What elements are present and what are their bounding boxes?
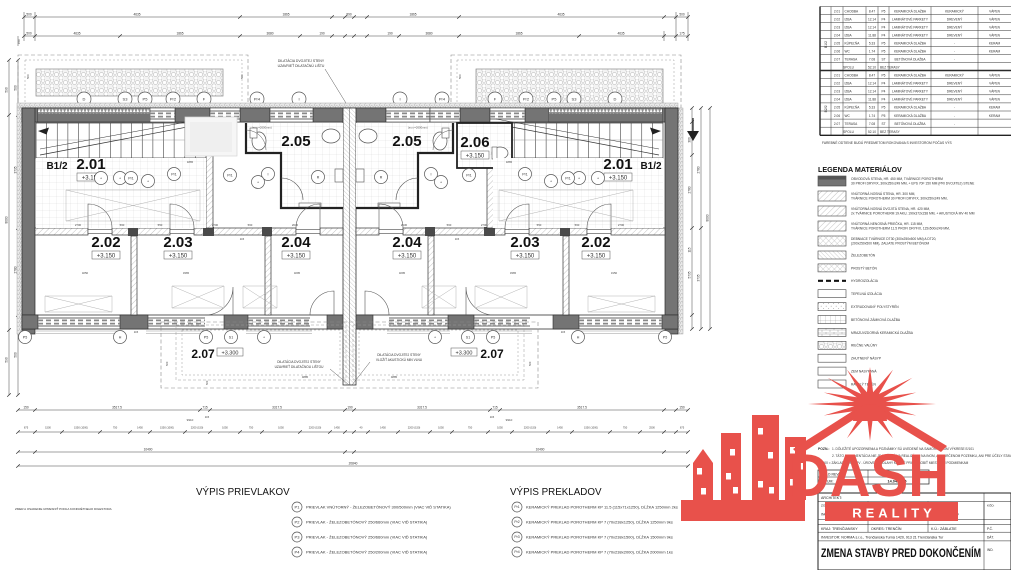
svg-text:5.33: 5.33: [869, 106, 875, 110]
svg-text:Pr1: Pr1: [227, 173, 233, 177]
svg-text:TERASA: TERASA: [845, 57, 859, 61]
svg-text:2.02: 2.02: [91, 234, 120, 251]
svg-text:590: 590: [5, 87, 9, 93]
svg-text:KERAM: KERAM: [989, 41, 1001, 45]
svg-text:150: 150: [23, 405, 29, 409]
svg-text:2630: 2630: [401, 223, 408, 227]
svg-text:1450: 1450: [137, 426, 143, 430]
svg-text:I: I: [399, 96, 400, 101]
svg-text:1550 (1000): 1550 (1000): [584, 426, 598, 430]
svg-text:1.74: 1.74: [869, 49, 875, 53]
svg-text:2630: 2630: [292, 223, 299, 227]
svg-text:+3.150: +3.150: [587, 253, 606, 259]
svg-text:KÚPEĽŇA: KÚPEĽŇA: [845, 105, 861, 110]
svg-text:PROSTÝ BETÓN: PROSTÝ BETÓN: [851, 265, 877, 270]
svg-text:KERAMICKÝ PREKLAD POROTHERM KP: KERAMICKÝ PREKLAD POROTHERM KP 7 (70x238…: [526, 535, 673, 540]
svg-text:H: H: [119, 335, 122, 339]
svg-text:-: -: [954, 114, 955, 118]
svg-text:115: 115: [205, 415, 210, 419]
svg-text:52.10: 52.10: [868, 130, 876, 134]
svg-text:2700: 2700: [75, 223, 82, 227]
svg-text:(sv.v.=2600mm): (sv.v.=2600mm): [408, 126, 428, 130]
svg-text:+3.150: +3.150: [97, 253, 116, 259]
svg-text:2.02: 2.02: [834, 81, 840, 85]
svg-text:190: 190: [319, 31, 325, 35]
svg-text:DREVENÝ: DREVENÝ: [947, 17, 963, 21]
svg-text:-: -: [954, 57, 955, 61]
svg-text:P5: P5: [882, 49, 886, 53]
svg-text:KERAMICKÁ DLAŽBA: KERAMICKÁ DLAŽBA: [894, 48, 927, 53]
svg-text:ZMENA STAVBY PRED DOKONČENÍM: ZMENA STAVBY PRED DOKONČENÍM: [821, 547, 981, 560]
svg-text:TERASA: TERASA: [845, 122, 859, 126]
svg-text:4635: 4635: [73, 31, 80, 35]
svg-text:2.04: 2.04: [281, 234, 311, 251]
svg-text:2.05: 2.05: [834, 106, 840, 110]
svg-text:ZEM NASYPANÁ: ZEM NASYPANÁ: [851, 370, 877, 374]
svg-text:KERAMICKÁ DLAŽBA: KERAMICKÁ DLAŽBA: [894, 72, 927, 77]
svg-text:KERAM: KERAM: [989, 106, 1001, 110]
svg-text:3365: 3365: [183, 271, 190, 275]
svg-text:VÁPEN: VÁPEN: [989, 9, 1001, 13]
svg-text:12.14: 12.14: [868, 17, 876, 21]
svg-text:B1/2: B1/2: [824, 41, 828, 48]
svg-text:+3.300: +3.300: [456, 351, 473, 357]
svg-text:2.05: 2.05: [392, 133, 421, 150]
svg-text:11.88: 11.88: [868, 33, 876, 37]
svg-text:KERAMICKÁ DLAŽBA: KERAMICKÁ DLAŽBA: [894, 40, 927, 45]
svg-text:+: +: [263, 335, 265, 339]
svg-text:Pr1: Pr1: [514, 505, 519, 509]
svg-text:KERAMICKÝ: KERAMICKÝ: [945, 73, 965, 77]
svg-text:IZBA: IZBA: [845, 98, 853, 102]
svg-text:P.Č.: P.Č.: [987, 526, 993, 531]
svg-text:115: 115: [688, 247, 692, 252]
svg-text:190: 190: [347, 405, 353, 409]
svg-text:LAMINÁTOVÉ PARKETY: LAMINÁTOVÉ PARKETY: [892, 80, 929, 85]
svg-text:ZMER A OSADENIE UPRESNIŤ PODĽA: ZMER A OSADENIE UPRESNIŤ PODĽA KONKRÉTNE…: [15, 506, 112, 511]
svg-text:500: 500: [528, 361, 532, 366]
svg-text:3365: 3365: [510, 271, 517, 275]
svg-text:DASH: DASH: [789, 442, 949, 509]
svg-text:2.04: 2.04: [834, 98, 840, 102]
svg-text:3295: 3295: [399, 271, 406, 275]
svg-text:MRAZUVZDORNÁ KERAMICKÁ DLAŽBA: MRAZUVZDORNÁ KERAMICKÁ DLAŽBA: [851, 330, 914, 335]
svg-text:12.14: 12.14: [868, 81, 876, 85]
svg-text:1050: 1050: [222, 426, 228, 430]
svg-text:REALITY: REALITY: [852, 506, 936, 521]
svg-text:SPOLU: SPOLU: [843, 65, 855, 69]
svg-text:OKRES: TRENČÍN: OKRES: TRENČÍN: [871, 526, 902, 531]
svg-text:P5: P5: [882, 114, 886, 118]
svg-text:500: 500: [14, 85, 18, 91]
svg-text:BETÓNOVÁ ZÁMKOVÁ DLAŽBA: BETÓNOVÁ ZÁMKOVÁ DLAŽBA: [851, 317, 901, 322]
svg-text:190: 190: [387, 31, 393, 35]
svg-text:TEPELNÁ IZOLÁCIA: TEPELNÁ IZOLÁCIA: [851, 292, 883, 296]
svg-text:2200 (150): 2200 (150): [191, 426, 204, 430]
svg-text:VÁPEN: VÁPEN: [989, 25, 1001, 29]
svg-text:P1: P1: [295, 504, 301, 509]
svg-text:VÁPEN: VÁPEN: [989, 17, 1001, 21]
svg-text:Pr1: Pr1: [128, 176, 134, 180]
svg-text:7.08: 7.08: [869, 57, 875, 61]
svg-text:12.14: 12.14: [868, 90, 876, 94]
svg-text:P5: P5: [882, 9, 886, 13]
svg-text:+3.150: +3.150: [516, 253, 535, 259]
svg-text:3680: 3680: [266, 31, 273, 35]
svg-text:500: 500: [205, 380, 209, 385]
svg-text:2.01: 2.01: [603, 156, 632, 173]
svg-text:1450: 1450: [380, 426, 386, 430]
svg-text:2780: 2780: [697, 166, 701, 173]
svg-text:52.10: 52.10: [868, 65, 876, 69]
svg-text:+3.150: +3.150: [466, 153, 485, 159]
svg-text:Pr2: Pr2: [170, 96, 177, 101]
svg-text:590: 590: [5, 357, 9, 363]
svg-text:VÝPIS PRIEVLAKOV: VÝPIS PRIEVLAKOV: [196, 487, 290, 498]
svg-text:P4: P4: [882, 17, 886, 21]
svg-text:+: +: [550, 179, 552, 183]
svg-text:IZBA: IZBA: [845, 90, 853, 94]
svg-text:R: R: [380, 175, 383, 179]
svg-text:9910: 9910: [187, 418, 194, 422]
svg-text:I: I: [268, 172, 269, 176]
svg-text:300: 300: [688, 137, 692, 143]
svg-text:8000: 8000: [5, 216, 9, 223]
svg-text:1865: 1865: [282, 12, 289, 16]
svg-text:LAMINÁTOVÉ PARKETY: LAMINÁTOVÉ PARKETY: [892, 24, 929, 29]
svg-text:ST: ST: [881, 122, 885, 126]
svg-text:7.08: 7.08: [869, 122, 875, 126]
svg-text:KERAM: KERAM: [989, 49, 1001, 53]
svg-text:12.14: 12.14: [868, 25, 876, 29]
svg-text:CHODBA: CHODBA: [845, 9, 860, 13]
svg-text:B1/2: B1/2: [46, 161, 68, 172]
svg-text:TVÁRNICE POROTHERM 30 PROFI DR: TVÁRNICE POROTHERM 30 PROFI DRYFIX, 300x…: [851, 196, 948, 200]
svg-text:560: 560: [575, 223, 580, 227]
svg-text:KERAMICKÝ PREKLAD POROTHERM KP: KERAMICKÝ PREKLAD POROTHERM KP 7 (70x238…: [526, 550, 673, 555]
svg-text:750: 750: [623, 426, 628, 430]
svg-text:4635: 4635: [557, 12, 564, 16]
svg-text:3517.5: 3517.5: [112, 405, 122, 409]
svg-text:LAMINÁTOVÉ PARKETY: LAMINÁTOVÉ PARKETY: [892, 32, 929, 37]
svg-text:VÁPEN: VÁPEN: [989, 98, 1001, 102]
svg-text:5.33: 5.33: [869, 41, 875, 45]
svg-text:LAMINÁTOVÉ PARKETY: LAMINÁTOVÉ PARKETY: [892, 89, 929, 94]
svg-text:PRIEVLAK - ŽELEZOBETÓNOVÝ 250/: PRIEVLAK - ŽELEZOBETÓNOVÝ 250/200mm (VIA…: [306, 550, 428, 555]
svg-text:UZAVRIEŤ DILATAČNÚ LIŠTU: UZAVRIEŤ DILATAČNÚ LIŠTU: [278, 63, 325, 68]
svg-text:2.03: 2.03: [834, 90, 840, 94]
svg-text:2.06: 2.06: [834, 49, 840, 53]
svg-text:+: +: [578, 176, 580, 180]
svg-text:DREVENÝ: DREVENÝ: [947, 81, 963, 85]
svg-text:+: +: [597, 176, 599, 180]
svg-text:P4: P4: [882, 98, 886, 102]
svg-text:4885: 4885: [391, 375, 398, 379]
svg-text:+: +: [440, 180, 442, 184]
svg-text:DILATÁCIA DVOJITEJ STENY: DILATÁCIA DVOJITEJ STENY: [277, 360, 321, 364]
svg-text:1550 (1000): 1550 (1000): [74, 426, 88, 430]
svg-text:2.05: 2.05: [834, 41, 840, 45]
svg-text:K.Ú.: ZÁBLATIE: K.Ú.: ZÁBLATIE: [931, 526, 957, 531]
svg-text:+: +: [119, 176, 121, 180]
svg-text:Pr4: Pr4: [514, 550, 519, 554]
svg-text:3735: 3735: [697, 274, 701, 281]
svg-text:S1: S1: [229, 335, 233, 339]
svg-text:550: 550: [158, 223, 163, 227]
svg-text:2700: 2700: [618, 223, 625, 227]
svg-text:DILATÁCIA DVOJITEJ STENY: DILATÁCIA DVOJITEJ STENY: [377, 353, 421, 357]
svg-text:LAMINÁTOVÉ PARKETY: LAMINÁTOVÉ PARKETY: [892, 16, 929, 21]
svg-text:Pr4: Pr4: [254, 96, 261, 101]
svg-text:560: 560: [447, 223, 452, 227]
svg-text:PRIEVLAK VNÚTORNÝ - ŽELEZOBETÓ: PRIEVLAK VNÚTORNÝ - ŽELEZOBETÓNOVÝ 300/5…: [306, 505, 451, 510]
svg-text:P5: P5: [663, 335, 667, 339]
svg-text:DÁT.: DÁT.: [987, 536, 994, 540]
svg-text:715: 715: [492, 405, 498, 409]
svg-text:+3.150: +3.150: [398, 253, 417, 259]
svg-text:10400: 10400: [536, 447, 545, 451]
svg-text:Pr1: Pr1: [466, 173, 472, 177]
svg-text:2.05: 2.05: [281, 133, 310, 150]
svg-text:S1: S1: [466, 335, 470, 339]
svg-text:2200 (150): 2200 (150): [524, 426, 537, 430]
svg-text:10400: 10400: [144, 447, 153, 451]
svg-text:IND.: IND.: [987, 548, 993, 552]
svg-text:KERAMICKÝ: KERAMICKÝ: [945, 9, 965, 13]
svg-text:715: 715: [202, 405, 208, 409]
svg-text:2.01: 2.01: [834, 73, 840, 77]
svg-text:EXTRUDOVANÝ POLYSTYRÉN: EXTRUDOVANÝ POLYSTYRÉN: [851, 304, 899, 309]
svg-text:VLOŽIŤ AKUSTICKÚ MIN VLNU: VLOŽIŤ AKUSTICKÚ MIN VLNU: [376, 357, 423, 362]
svg-text:DREVENÝ: DREVENÝ: [947, 90, 963, 94]
svg-text:RIEČNE VALÚNY: RIEČNE VALÚNY: [851, 343, 878, 348]
svg-text:KÚPEĽŇA: KÚPEĽŇA: [845, 40, 861, 45]
svg-text:VÁPEN: VÁPEN: [989, 73, 1001, 77]
svg-text:Pr4: Pr4: [439, 96, 446, 101]
svg-text:P5: P5: [882, 73, 886, 77]
svg-text:560: 560: [248, 223, 253, 227]
svg-text:115: 115: [240, 237, 245, 241]
svg-text:KERAMICKÁ DLAŽBA: KERAMICKÁ DLAŽBA: [894, 8, 927, 13]
svg-text:LEGENDA MATERIÁLOV: LEGENDA MATERIÁLOV: [818, 165, 902, 174]
svg-text:2200 (150): 2200 (150): [408, 426, 421, 430]
svg-text:FAREBNÉ ODTIENE BUDÚ PREDMETOM: FAREBNÉ ODTIENE BUDÚ PREDMETOM ROKOVANIA…: [822, 140, 953, 145]
svg-text:2.03: 2.03: [510, 234, 539, 251]
svg-text:500: 500: [458, 74, 462, 79]
svg-text:P4: P4: [882, 33, 886, 37]
svg-text:H: H: [577, 335, 580, 339]
svg-text:1500: 1500: [45, 426, 51, 430]
svg-text:2.02: 2.02: [834, 17, 840, 21]
svg-text:550: 550: [537, 223, 542, 227]
svg-text:P4: P4: [882, 25, 886, 29]
svg-text:675: 675: [24, 426, 29, 430]
svg-text:2780: 2780: [688, 186, 692, 193]
svg-text:-: -: [954, 106, 955, 110]
svg-text:-: -: [954, 41, 955, 45]
svg-text:KÓD:: KÓD:: [987, 503, 995, 508]
svg-text:VÁPEN: VÁPEN: [989, 81, 1001, 85]
svg-text:D: D: [614, 96, 617, 101]
svg-text:3150: 3150: [611, 271, 618, 275]
svg-text:DEBNIACE TVÁRNICE DT30 (300x25: DEBNIACE TVÁRNICE DT30 (300x250x500 MM) …: [851, 237, 936, 241]
svg-text:4635: 4635: [133, 12, 140, 16]
svg-text:2.07: 2.07: [834, 122, 840, 126]
svg-text:890: 890: [346, 12, 352, 16]
svg-text:1865: 1865: [187, 160, 194, 164]
svg-text:2.07: 2.07: [191, 347, 215, 361]
svg-text:2700: 2700: [212, 223, 219, 227]
svg-text:3517.5: 3517.5: [577, 405, 587, 409]
svg-text:30 PROFI DRYFIX, 300x250x249 M: 30 PROFI DRYFIX, 300x250x249 MM, + EPS 7…: [851, 181, 975, 185]
svg-text:VÁPEN: VÁPEN: [989, 90, 1001, 94]
svg-text:+3.150: +3.150: [169, 253, 188, 259]
svg-text:P2: P2: [295, 519, 301, 524]
svg-text:LAMINÁTOVÉ PARKETY: LAMINÁTOVÉ PARKETY: [892, 97, 929, 102]
svg-text:P5: P5: [143, 96, 149, 101]
svg-text:DREVENÝ: DREVENÝ: [947, 98, 963, 102]
svg-text:500: 500: [26, 74, 30, 79]
svg-text:P5: P5: [491, 335, 495, 339]
svg-text:1865: 1865: [176, 31, 183, 35]
svg-text:BEZ TERASY: BEZ TERASY: [880, 130, 901, 134]
svg-text:-: -: [954, 49, 955, 53]
svg-text:+3.150: +3.150: [609, 175, 628, 181]
svg-text:1550 (1000): 1550 (1000): [160, 426, 174, 430]
svg-text:2.06: 2.06: [834, 114, 840, 118]
svg-text:-: -: [954, 122, 955, 126]
svg-text:4635: 4635: [617, 31, 624, 35]
svg-text:1050: 1050: [278, 426, 284, 430]
svg-text:DILATÁCIA DVOJITEJ STENY: DILATÁCIA DVOJITEJ STENY: [278, 59, 325, 63]
svg-text:5735: 5735: [688, 271, 692, 278]
svg-text:ZHUTNENÝ NÁSYP: ZHUTNENÝ NÁSYP: [851, 357, 882, 361]
svg-text:I: I: [431, 172, 432, 176]
svg-text:500: 500: [14, 352, 18, 358]
svg-text:115: 115: [455, 237, 460, 241]
svg-text:+: +: [147, 179, 149, 183]
svg-text:2.04: 2.04: [834, 33, 840, 37]
svg-text:UZAVRIEŤ DILATAČNOU LIŠTOU: UZAVRIEŤ DILATAČNOU LIŠTOU: [275, 364, 325, 369]
svg-text:Pr2: Pr2: [523, 96, 530, 101]
svg-text:IZBA: IZBA: [845, 17, 853, 21]
svg-text:SPOLU: SPOLU: [843, 130, 855, 134]
svg-text:VNÚTORNÁ NOSNÁ DVOJITÁ STENA,: VNÚTORNÁ NOSNÁ DVOJITÁ STENA, HR. 420 MM…: [851, 207, 930, 211]
svg-text:3295: 3295: [294, 271, 301, 275]
svg-text:750: 750: [113, 426, 118, 430]
svg-text:B1/2: B1/2: [640, 161, 662, 172]
svg-text:D: D: [83, 96, 86, 101]
svg-text:Pr2: Pr2: [514, 520, 519, 524]
svg-text:9910: 9910: [506, 418, 513, 422]
svg-text:2.03: 2.03: [834, 25, 840, 29]
svg-text:HYDROIZOLÁCIA: HYDROIZOLÁCIA: [851, 279, 879, 283]
svg-text:P5: P5: [23, 335, 27, 339]
svg-text:1450: 1450: [557, 426, 563, 430]
svg-text:2.03: 2.03: [163, 234, 192, 251]
svg-text:20840: 20840: [349, 461, 358, 465]
svg-text:P4: P4: [882, 90, 886, 94]
svg-text:BETÓNOVÁ DLAŽBA: BETÓNOVÁ DLAŽBA: [895, 56, 927, 61]
svg-text:675: 675: [680, 426, 685, 430]
svg-text:P5: P5: [204, 335, 208, 339]
svg-text:VNÚTORNÁ NENOSNÁ PRIEČKA, HR.: VNÚTORNÁ NENOSNÁ PRIEČKA, HR. 115 MM,: [851, 221, 923, 226]
svg-text:150: 150: [17, 39, 21, 44]
svg-text:2.07: 2.07: [480, 347, 504, 361]
svg-text:500: 500: [165, 361, 169, 366]
svg-text:750: 750: [468, 426, 473, 430]
svg-text:BETÓNOVÁ DLAŽBA: BETÓNOVÁ DLAŽBA: [895, 121, 927, 126]
svg-text:2700: 2700: [481, 223, 488, 227]
svg-text:P4: P4: [295, 549, 301, 554]
svg-text:2.07: 2.07: [834, 57, 840, 61]
svg-text:1865: 1865: [409, 12, 416, 16]
svg-text:1450: 1450: [334, 426, 340, 430]
svg-text:115: 115: [490, 415, 495, 419]
svg-text:KERAM: KERAM: [989, 114, 1001, 118]
svg-text:OBVODOVÁ STENA, HR. 450 MM, TV: OBVODOVÁ STENA, HR. 450 MM, TVÁRNICE POR…: [851, 177, 943, 181]
svg-text:ŽELEZOBETÓN: ŽELEZOBETÓN: [851, 252, 876, 257]
svg-text:2.06: 2.06: [460, 134, 489, 151]
svg-text:KRAJ: TRENČIANSKY: KRAJ: TRENČIANSKY: [821, 526, 858, 531]
svg-text:1050: 1050: [497, 426, 503, 430]
svg-text:KERAMICKÝ PREKLAD POROTHERM KP: KERAMICKÝ PREKLAD POROTHERM KP 11.5 (115…: [526, 505, 678, 510]
svg-text:WC: WC: [845, 114, 851, 118]
svg-text:DREVENÝ: DREVENÝ: [947, 33, 963, 37]
svg-text:PRIEVLAK - ŽELEZOBETÓNOVÝ 250/: PRIEVLAK - ŽELEZOBETÓNOVÝ 250/660mm (VIA…: [306, 520, 428, 525]
svg-text:P5: P5: [882, 41, 886, 45]
svg-text:R: R: [317, 175, 320, 179]
svg-text:INVESTOR: NORMA s.r.o., Trenč: INVESTOR: NORMA s.r.o., Trenčianska Turn…: [821, 536, 944, 540]
svg-text:4885: 4885: [302, 375, 309, 379]
svg-text:DREVENÝ: DREVENÝ: [947, 25, 963, 29]
svg-text:3680: 3680: [425, 31, 432, 35]
svg-text:115: 115: [134, 330, 139, 334]
svg-text:Pr3: Pr3: [514, 535, 519, 539]
svg-text:BEZ TERASY: BEZ TERASY: [880, 65, 901, 69]
svg-text:IZBA: IZBA: [845, 25, 853, 29]
svg-text:8000: 8000: [706, 214, 710, 221]
svg-text:VÝPIS PREKLADOV: VÝPIS PREKLADOV: [510, 487, 602, 498]
svg-text:PRIEVLAK - ŽELEZOBETÓNOVÝ 250/: PRIEVLAK - ŽELEZOBETÓNOVÝ 250/660mm (VIA…: [306, 535, 428, 540]
svg-text:S3: S3: [123, 96, 129, 101]
svg-text:VÁPEN: VÁPEN: [989, 33, 1001, 37]
svg-text:2.02: 2.02: [581, 234, 610, 251]
svg-text:P3: P3: [295, 534, 301, 539]
svg-text:+: +: [100, 176, 102, 180]
svg-text:Pr1: Pr1: [565, 176, 571, 180]
svg-text:560: 560: [120, 223, 125, 227]
svg-text:8.47: 8.47: [869, 73, 875, 77]
svg-text:1865: 1865: [515, 31, 522, 35]
svg-text:+3.300: +3.300: [222, 351, 239, 357]
svg-text:+3.150: +3.150: [287, 253, 306, 259]
svg-text:KERAMICKÝ PREKLAD POROTHERM KP: KERAMICKÝ PREKLAD POROTHERM KP 7 (70x238…: [526, 520, 673, 525]
svg-text:P5: P5: [882, 106, 886, 110]
svg-text:+: +: [257, 180, 259, 184]
svg-text:3250: 3250: [82, 271, 89, 275]
svg-text:B2/2: B2/2: [824, 105, 828, 112]
svg-text:WC: WC: [845, 49, 851, 53]
svg-text:115: 115: [561, 330, 566, 334]
svg-text:2x TVÁRNICE POROTHERM 19 AKU,: 2x TVÁRNICE POROTHERM 19 AKU, 190x372x23…: [851, 211, 975, 215]
svg-text:CHODBA: CHODBA: [845, 73, 860, 77]
svg-text:ST: ST: [881, 57, 885, 61]
svg-text:I: I: [298, 96, 299, 101]
svg-text:2.01: 2.01: [76, 156, 105, 173]
svg-text:P4: P4: [882, 81, 886, 85]
svg-text:3317.5: 3317.5: [417, 405, 427, 409]
